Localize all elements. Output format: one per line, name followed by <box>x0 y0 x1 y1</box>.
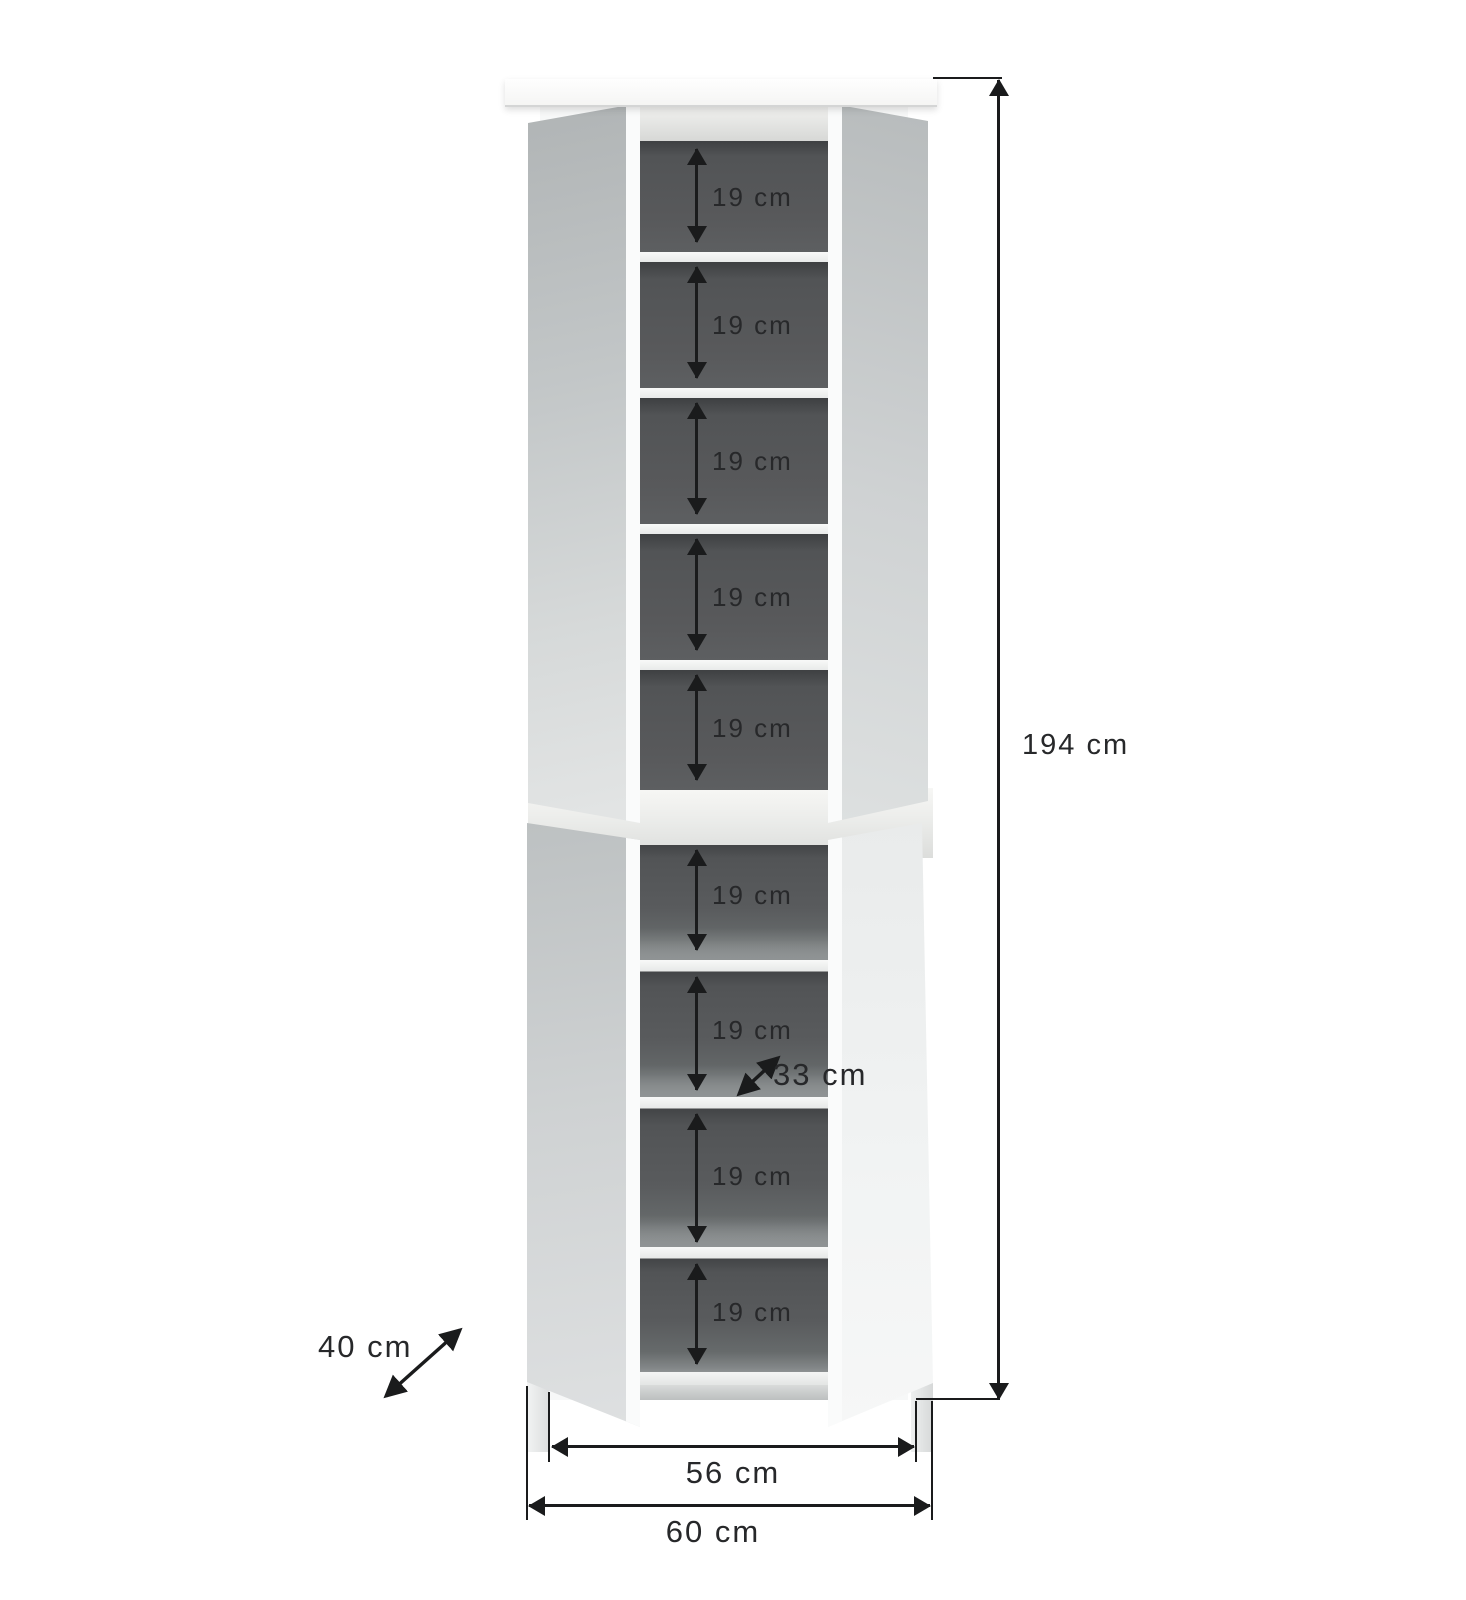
shelf <box>637 1247 828 1258</box>
inner-width-arrow-icon <box>552 1445 914 1448</box>
vertical-dimension-arrow-icon <box>695 539 698 650</box>
vertical-dimension-arrow-icon <box>695 977 698 1090</box>
vertical-dimension-arrow-icon <box>695 403 698 514</box>
cabinet-depth-label: 40 cm <box>318 1331 412 1363</box>
shelf-gap-label: 19 cm <box>712 181 793 213</box>
cabinet-top-panel <box>505 79 937 107</box>
shelf <box>637 960 828 971</box>
shelf-gap-label: 19 cm <box>712 1160 793 1192</box>
furniture-dimension-diagram: 19 cm 19 cm 19 cm 19 cm 19 cm 19 cm 19 c… <box>0 0 1466 1600</box>
bottom-right-mirror-door <box>828 823 933 1427</box>
shelf-gap-label: 19 cm <box>712 1296 793 1328</box>
vertical-dimension-arrow-icon <box>695 850 698 950</box>
plinth-shadow <box>637 1385 828 1400</box>
shelf-gap-label: 19 cm <box>712 445 793 477</box>
top-right-mirror-door <box>828 100 928 823</box>
inner-width-extension-line <box>915 1401 917 1462</box>
shelf-gap-label: 19 cm <box>712 879 793 911</box>
shelf-gap-label: 19 cm <box>712 1014 793 1046</box>
shelf-gap-label: 19 cm <box>712 712 793 744</box>
overall-height-arrow-icon <box>997 80 1000 1399</box>
vertical-dimension-arrow-icon <box>695 267 698 378</box>
bottom-left-mirror-door <box>527 823 640 1427</box>
outer-width-extension-line <box>931 1401 933 1520</box>
shelf-gap-label: 19 cm <box>712 581 793 613</box>
shelf-gap-label: 19 cm <box>712 309 793 341</box>
inner-width-extension-line <box>548 1392 550 1462</box>
vertical-dimension-arrow-icon <box>695 1264 698 1364</box>
shelf-depth-label: 33 cm <box>773 1059 867 1091</box>
height-extension-line <box>916 1398 1000 1400</box>
vertical-dimension-arrow-icon <box>695 149 698 242</box>
interior-top-face <box>637 104 828 141</box>
vertical-dimension-arrow-icon <box>695 1114 698 1242</box>
outer-width-arrow-icon <box>529 1504 930 1507</box>
cabinet-floor <box>637 1372 828 1385</box>
outer-width-label: 60 cm <box>633 1516 793 1548</box>
inner-width-label: 56 cm <box>653 1457 813 1489</box>
vertical-dimension-arrow-icon <box>695 675 698 780</box>
top-left-mirror-door <box>528 100 640 823</box>
overall-height-label: 194 cm <box>1022 729 1129 761</box>
left-side-panel-foot <box>527 1382 549 1452</box>
